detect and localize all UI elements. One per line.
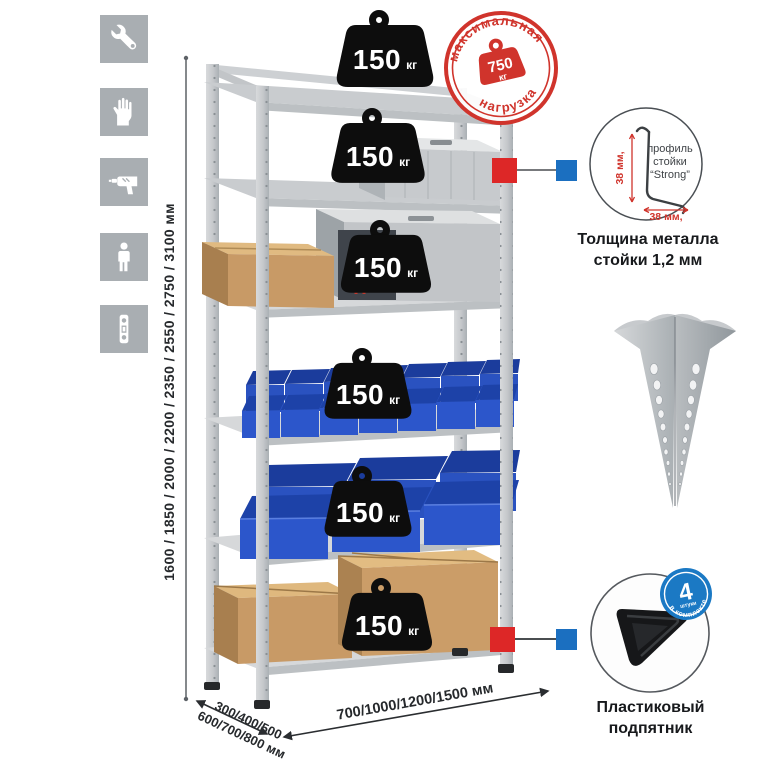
height-dimension-line	[184, 56, 188, 701]
profile-dim-horizontal: 38 мм,	[649, 211, 682, 222]
load-unit: кг	[406, 58, 417, 72]
bottom-red-marker	[490, 627, 515, 652]
svg-text:стойки: стойки	[653, 156, 687, 168]
corner-post-image	[600, 303, 750, 518]
load-badge-shelf6: 150кг	[331, 592, 443, 652]
front-left-post	[256, 86, 269, 700]
load-badge-shelf3: 150кг	[330, 234, 442, 294]
top-red-marker	[492, 158, 517, 183]
load-badge-shelf5: 150кг	[314, 480, 422, 538]
load-badge-shelf4: 150кг	[314, 362, 422, 420]
load-badge-shelf2: 150кг	[320, 122, 436, 184]
count-badge: 4 штуки в комплекте	[654, 562, 718, 626]
profile-label: профиль стойки “Strong”	[647, 143, 693, 181]
profile-callout-circle: 38 мм, 38 мм, профиль стойки “Strong”	[588, 106, 704, 222]
front-right-post	[500, 108, 513, 664]
load-badge-shelf1: 150кг	[325, 24, 445, 88]
width-dimension-line	[284, 691, 548, 737]
bottom-blue-marker	[556, 629, 577, 650]
profile-dim-vertical: 38 мм,	[614, 151, 626, 184]
load-value: 150	[353, 44, 401, 76]
svg-text:профиль: профиль	[647, 143, 693, 155]
top-blue-marker	[556, 160, 577, 181]
infographic-canvas: 150кг 150кг 150кг 150кг 150кг 150кг макс…	[0, 0, 765, 765]
svg-text:“Strong”: “Strong”	[650, 169, 690, 181]
